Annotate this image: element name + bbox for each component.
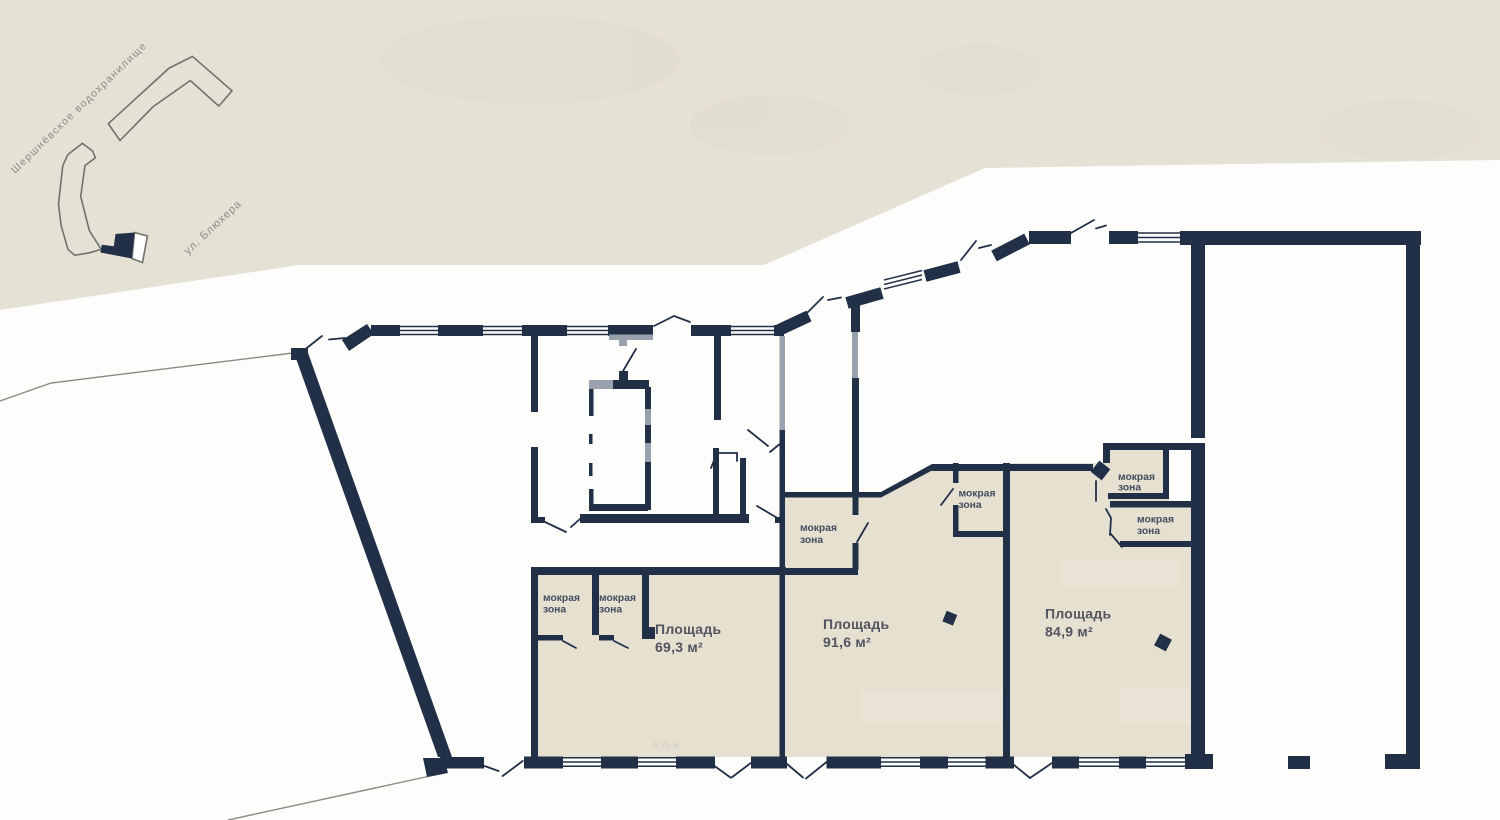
svg-text:Площадь: Площадь [655,621,721,637]
svg-text:зона: зона [1137,526,1160,537]
svg-text:зона: зона [1118,483,1141,494]
svg-text:мокрая: мокрая [959,489,996,500]
svg-text:69,3 м²: 69,3 м² [655,639,703,655]
svg-text:зона: зона [599,605,622,616]
svg-text:зона: зона [959,500,982,511]
svg-text:мокрая: мокрая [1118,472,1155,483]
svg-text:5,85 м: 5,85 м [653,740,679,750]
svg-text:мокрая: мокрая [543,593,580,604]
svg-text:84,9 м²: 84,9 м² [1045,624,1093,640]
svg-text:зона: зона [800,535,823,546]
svg-text:мокрая: мокрая [599,593,636,604]
svg-text:Площадь: Площадь [1045,606,1111,622]
svg-text:зона: зона [543,605,566,616]
svg-text:мокрая: мокрая [800,523,837,534]
svg-text:мокрая: мокрая [1137,515,1174,526]
svg-text:Площадь: Площадь [823,616,889,632]
svg-text:91,6 м²: 91,6 м² [823,634,871,650]
